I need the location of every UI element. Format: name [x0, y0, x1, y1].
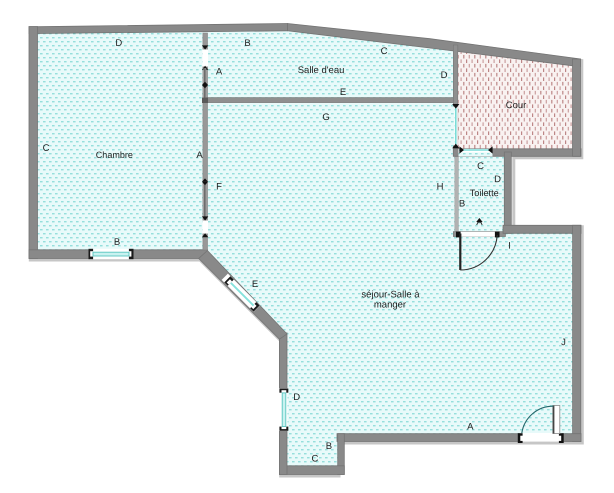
svg-text:H: H: [437, 182, 444, 193]
svg-text:C: C: [43, 143, 50, 154]
svg-text:F: F: [216, 181, 222, 192]
svg-text:C: C: [477, 161, 484, 172]
svg-text:D: D: [494, 174, 501, 185]
svg-text:J: J: [561, 337, 566, 348]
svg-text:E: E: [340, 87, 346, 98]
svg-text:Cour: Cour: [506, 100, 527, 111]
svg-text:B: B: [114, 237, 120, 248]
svg-text:B: B: [459, 199, 465, 210]
svg-text:Chambre: Chambre: [96, 150, 133, 160]
svg-text:B: B: [244, 38, 250, 49]
svg-text:B: B: [326, 441, 332, 452]
svg-text:C: C: [381, 46, 388, 57]
svg-text:D: D: [441, 70, 448, 81]
svg-text:E: E: [252, 279, 258, 290]
svg-text:G: G: [322, 112, 329, 123]
svg-text:A: A: [216, 66, 223, 77]
svg-text:D: D: [293, 392, 300, 403]
svg-text:A: A: [196, 150, 203, 161]
svg-text:Salle d'eau: Salle d'eau: [298, 65, 345, 76]
svg-text:A: A: [467, 422, 474, 433]
svg-text:Toilette: Toilette: [470, 188, 499, 198]
svg-text:I: I: [508, 241, 511, 252]
svg-text:D: D: [115, 38, 122, 49]
svg-text:manger: manger: [374, 300, 406, 311]
svg-text:C: C: [311, 454, 318, 465]
